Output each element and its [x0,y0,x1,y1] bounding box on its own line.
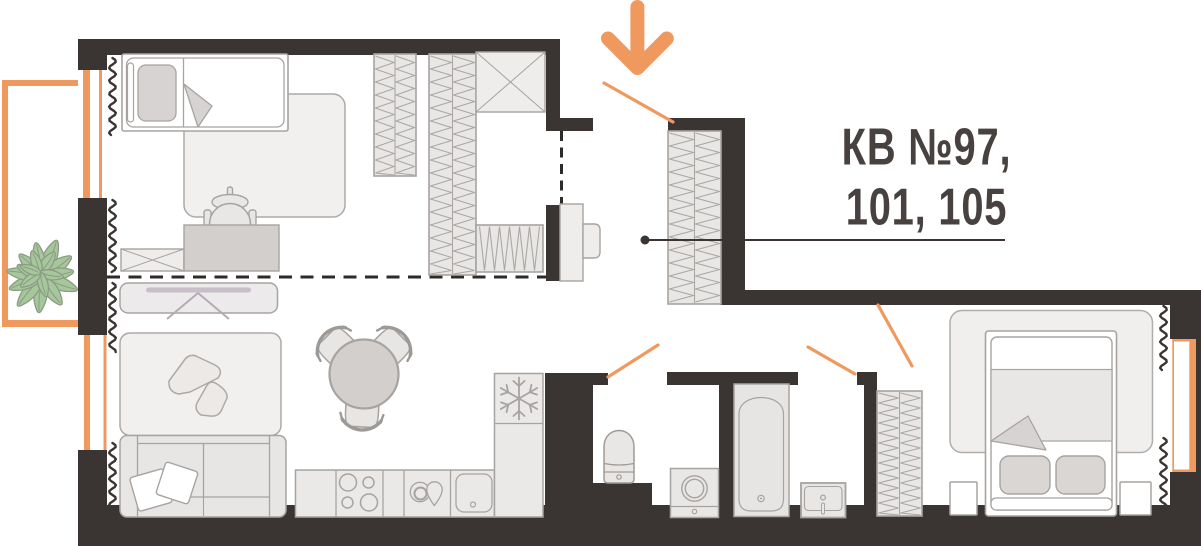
svg-text:101, 105: 101, 105 [846,178,1008,236]
svg-text:КВ №97,: КВ №97, [842,118,1012,176]
